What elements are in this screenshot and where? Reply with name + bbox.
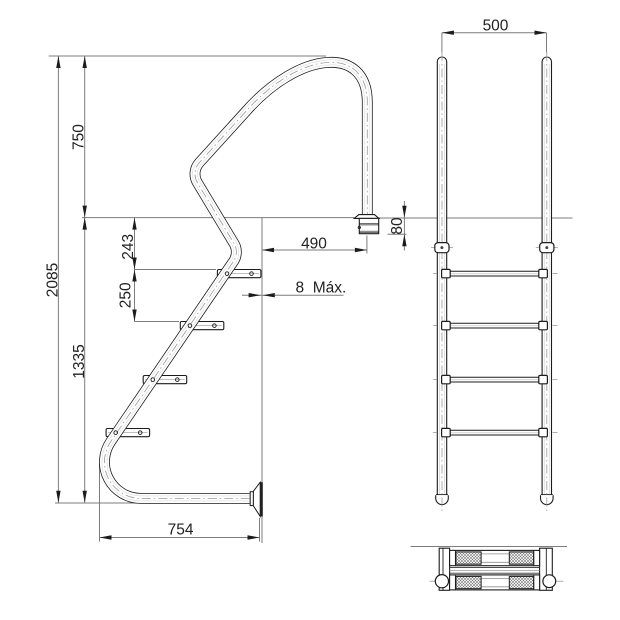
- svg-text:2085: 2085: [44, 263, 61, 297]
- svg-text:8 Máx.: 8 Máx.: [296, 280, 347, 297]
- svg-text:754: 754: [168, 522, 194, 539]
- svg-text:80: 80: [389, 217, 406, 235]
- svg-text:500: 500: [483, 17, 509, 34]
- svg-text:490: 490: [301, 235, 327, 252]
- svg-text:1335: 1335: [71, 344, 88, 378]
- svg-text:750: 750: [70, 124, 87, 150]
- svg-text:250: 250: [118, 282, 135, 308]
- svg-text:243: 243: [120, 234, 137, 260]
